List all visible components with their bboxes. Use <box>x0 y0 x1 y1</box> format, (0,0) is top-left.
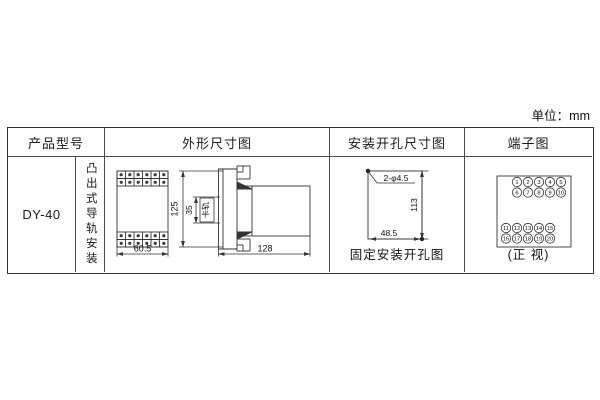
svg-text:8: 8 <box>537 191 540 197</box>
mounting-type-vertical-label: 凸出式导轨安装 <box>84 162 96 267</box>
svg-text:16: 16 <box>503 237 509 243</box>
mounting-hole-cell: 2-φ4.5 113 48.5 固定安装开孔图 <box>330 157 465 272</box>
front-width-value: 60.5 <box>134 244 152 254</box>
vertical-pitch-value: 113 <box>409 198 419 212</box>
outline-drawing-cell: 60.5 125 35 卡轨 <box>105 157 330 272</box>
mounting-type-cell: 凸出式导轨安装 <box>76 157 105 272</box>
svg-text:15: 15 <box>547 226 553 232</box>
svg-text:10: 10 <box>558 191 564 197</box>
product-model-value: DY-40 <box>8 157 76 272</box>
header-product-model: 产品型号 <box>8 128 105 157</box>
datasheet-page: 单位：mm 产品型号 外形尺寸图 安装开孔尺寸图 端子图 DY-40 凸出式导轨… <box>0 0 600 400</box>
vertical-pitch-dimension <box>422 171 429 239</box>
svg-text:7: 7 <box>526 191 529 197</box>
height-value: 125 <box>170 201 180 216</box>
terminal-diagram-caption: (正 视) <box>465 244 592 263</box>
depth-value: 128 <box>257 244 272 254</box>
svg-text:9: 9 <box>548 191 551 197</box>
mounting-hole-drawing: 2-φ4.5 113 48.5 <box>330 157 465 249</box>
unit-label: 单位：mm <box>532 105 590 124</box>
svg-text:3: 3 <box>537 180 540 186</box>
svg-text:1: 1 <box>515 180 518 186</box>
mounting-hole-caption: 固定安装开孔图 <box>330 244 464 263</box>
rail-slot-label: 卡轨 <box>201 202 211 218</box>
terminal-diagram: 1 2 3 4 5 6 7 8 9 10 11 12 13 14 15 16 1 <box>465 157 592 249</box>
terminal-circles <box>501 177 565 243</box>
spec-table: 产品型号 外形尺寸图 安装开孔尺寸图 端子图 DY-40 凸出式导轨安装 <box>7 127 594 274</box>
svg-text:19: 19 <box>536 237 542 243</box>
svg-text:11: 11 <box>503 226 509 232</box>
terminal-numbers: 1 2 3 4 5 6 7 8 9 10 11 12 13 14 15 16 1 <box>503 180 564 243</box>
svg-text:18: 18 <box>525 237 531 243</box>
horizontal-pitch-value: 48.5 <box>381 228 398 238</box>
svg-text:17: 17 <box>514 237 520 243</box>
terminal-diagram-cell: 1 2 3 4 5 6 7 8 9 10 11 12 13 14 15 16 1 <box>465 157 592 272</box>
svg-text:6: 6 <box>515 191 518 197</box>
header-mounting-holes: 安装开孔尺寸图 <box>330 128 465 157</box>
svg-text:13: 13 <box>525 226 531 232</box>
header-outline-drawing: 外形尺寸图 <box>105 128 330 157</box>
svg-text:2: 2 <box>526 180 529 186</box>
svg-text:14: 14 <box>536 226 543 232</box>
holes-label: 2-φ4.5 <box>384 173 409 183</box>
rail-slot-value: 35 <box>184 205 194 215</box>
svg-text:12: 12 <box>514 226 520 232</box>
svg-text:20: 20 <box>547 237 553 243</box>
svg-text:5: 5 <box>559 180 562 186</box>
outline-drawing: 60.5 125 35 卡轨 <box>105 157 330 272</box>
relay-side-view <box>219 166 311 251</box>
header-terminal-diagram: 端子图 <box>465 128 592 157</box>
relay-front-view <box>117 171 168 247</box>
svg-text:4: 4 <box>548 180 552 186</box>
